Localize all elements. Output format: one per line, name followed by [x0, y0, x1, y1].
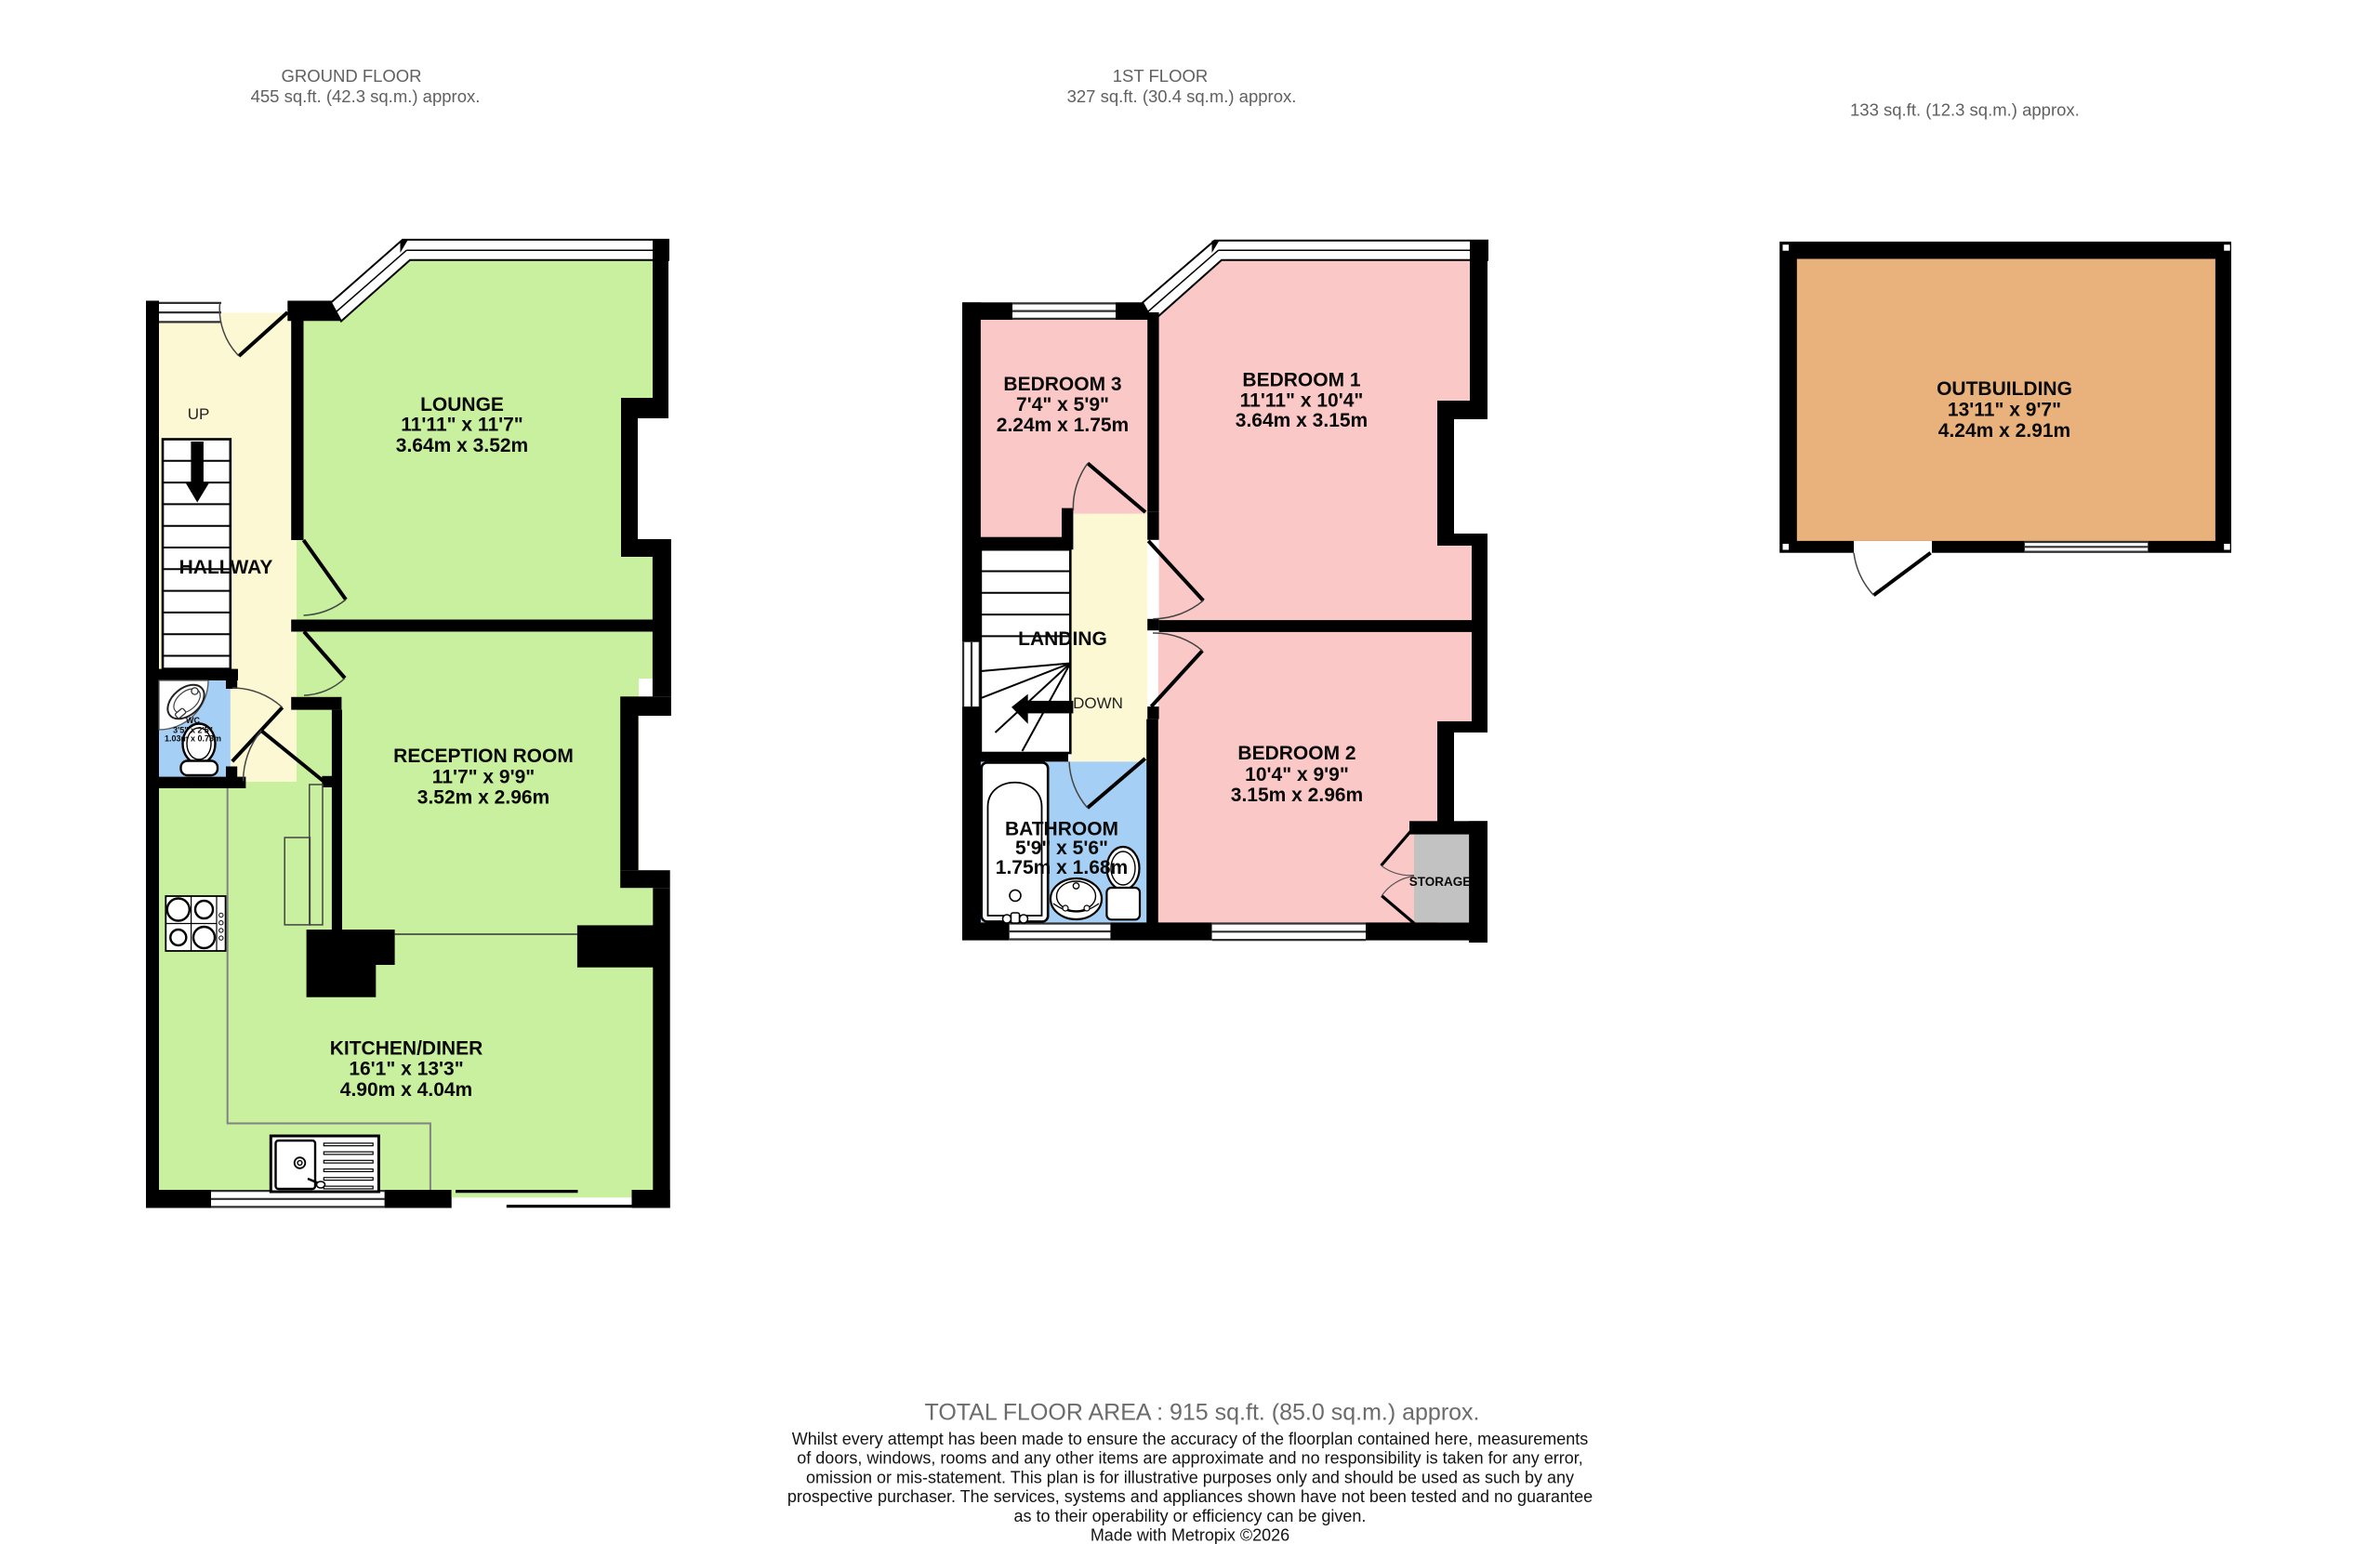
svg-text:1ST FLOOR: 1ST FLOOR [1113, 66, 1208, 86]
svg-text:UP: UP [188, 405, 210, 423]
svg-text:Made with Metropix ©2026: Made with Metropix ©2026 [1091, 1526, 1289, 1544]
svg-text:HALLWAY: HALLWAY [179, 557, 273, 578]
svg-text:prospective purchaser. The ser: prospective purchaser. The services, sys… [787, 1487, 1593, 1506]
svg-text:1.03m x 0.73m: 1.03m x 0.73m [165, 734, 221, 744]
svg-text:3.64m x 3.52m: 3.64m x 3.52m [396, 435, 528, 456]
svg-text:Whilst every attempt has been: Whilst every attempt has been made to en… [792, 1430, 1588, 1448]
svg-text:WC: WC [186, 716, 200, 725]
svg-text:3.64m x 3.15m: 3.64m x 3.15m [1236, 410, 1368, 431]
svg-text:11'7" x 9'9": 11'7" x 9'9" [432, 767, 535, 788]
svg-text:STORAGE: STORAGE [1409, 875, 1472, 889]
svg-text:TOTAL FLOOR AREA : 915 sq.ft.: TOTAL FLOOR AREA : 915 sq.ft. (85.0 sq.m… [925, 1400, 1480, 1426]
svg-text:3.15m x 2.96m: 3.15m x 2.96m [1231, 785, 1363, 806]
svg-text:455 sq.ft. (42.3 sq.m.) approx: 455 sq.ft. (42.3 sq.m.) approx. [251, 86, 481, 106]
svg-text:GROUND FLOOR: GROUND FLOOR [281, 66, 421, 86]
svg-text:of doors, windows, rooms and a: of doors, windows, rooms and any other i… [797, 1449, 1582, 1468]
svg-text:as to their operability or eff: as to their operability or efficiency ca… [1014, 1507, 1367, 1525]
svg-text:7'4" x 5'9": 7'4" x 5'9" [1016, 394, 1109, 416]
svg-text:16'1" x 13'3": 16'1" x 13'3" [349, 1059, 463, 1080]
svg-text:BEDROOM 1: BEDROOM 1 [1242, 370, 1361, 391]
svg-text:RECEPTION ROOM: RECEPTION ROOM [393, 746, 574, 767]
svg-text:4.90m x 4.04m: 4.90m x 4.04m [340, 1079, 472, 1101]
svg-text:133 sq.ft. (12.3 sq.m.) approx: 133 sq.ft. (12.3 sq.m.) approx. [1850, 100, 2080, 120]
svg-text:13'11" x 9'7": 13'11" x 9'7" [1948, 400, 2061, 421]
svg-text:LOUNGE: LOUNGE [420, 394, 504, 416]
svg-text:DOWN: DOWN [1073, 694, 1123, 712]
svg-text:10'4" x 9'9": 10'4" x 9'9" [1245, 764, 1349, 785]
svg-text:11'11" x 10'4": 11'11" x 10'4" [1240, 390, 1364, 412]
svg-text:KITCHEN/DINER: KITCHEN/DINER [330, 1038, 483, 1060]
svg-text:5'9" x 5'6": 5'9" x 5'6" [1015, 838, 1108, 859]
svg-text:OUTBUILDING: OUTBUILDING [1937, 378, 2072, 400]
svg-text:LANDING: LANDING [1018, 628, 1107, 650]
svg-text:omission or mis-statement. Thi: omission or mis-statement. This plan is … [806, 1468, 1574, 1486]
svg-text:327 sq.ft. (30.4 sq.m.) approx: 327 sq.ft. (30.4 sq.m.) approx. [1067, 86, 1297, 106]
svg-text:11'11" x 11'7": 11'11" x 11'7" [401, 415, 523, 436]
svg-text:2.24m x 1.75m: 2.24m x 1.75m [997, 415, 1129, 436]
svg-text:1.75m x 1.68m: 1.75m x 1.68m [996, 857, 1128, 878]
svg-text:4.24m x 2.91m: 4.24m x 2.91m [1938, 420, 2070, 442]
svg-text:3.52m x 2.96m: 3.52m x 2.96m [417, 787, 549, 809]
svg-text:BEDROOM 2: BEDROOM 2 [1237, 743, 1355, 764]
svg-text:BEDROOM 3: BEDROOM 3 [1003, 374, 1121, 395]
